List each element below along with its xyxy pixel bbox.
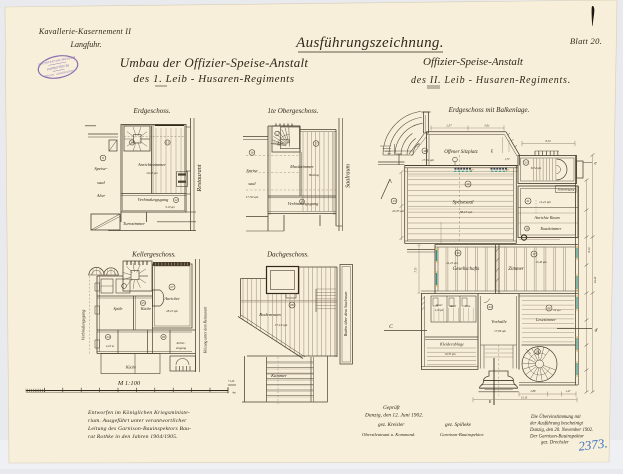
svg-text:Verbindungsgang: Verbindungsgang — [81, 309, 86, 341]
svg-text:Zimmer: Zimmer — [508, 267, 524, 272]
svg-text:Bodenraum: Bodenraum — [259, 312, 281, 317]
svg-text:16: 16 — [250, 151, 254, 155]
svg-text:Offizier-Speise-Anstalt: Offizier-Speise-Anstalt — [423, 56, 524, 68]
svg-text:15,10: 15,10 — [521, 396, 528, 399]
svg-text:21: 21 — [526, 199, 530, 203]
svg-text:Rauchzimmer: Rauchzimmer — [540, 227, 562, 231]
svg-text:Offener Sitzplatz: Offener Sitzplatz — [444, 150, 478, 155]
svg-text:Erdgeschoss.: Erdgeschoss. — [133, 107, 171, 115]
svg-text:Umbau der Offizier-Speise-Anst: Umbau der Offizier-Speise-Anstalt — [120, 55, 309, 70]
svg-text:18: 18 — [525, 227, 529, 231]
svg-text:rium. Ausgeführt unter verant: rium. Ausgeführt unter verantwortlicher — [88, 417, 187, 424]
svg-text:Boden über dem Saalraum: Boden über dem Saalraum — [343, 292, 348, 337]
svg-text:Danzig, den 12. Juni 1902.: Danzig, den 12. Juni 1902. — [364, 413, 423, 419]
svg-text:1,47: 1,47 — [566, 390, 571, 393]
svg-text:rat Rothke in den Jahren 1904/: rat Rothke in den Jahren 1904/1905. — [88, 434, 178, 440]
svg-text:19: 19 — [456, 251, 460, 255]
svg-text:23: 23 — [524, 161, 528, 165]
svg-text:27: 27 — [170, 285, 174, 289]
svg-text:Leitung des Garnison-Bauinspek: Leitung des Garnison-Bauinspektors Bau- — [87, 426, 191, 432]
svg-text:Turnzimmer: Turnzimmer — [123, 221, 145, 226]
svg-text:17: 17 — [314, 142, 318, 146]
svg-text:Dachgeschoss.: Dachgeschoss. — [266, 251, 309, 259]
svg-text:E: E — [490, 149, 494, 154]
svg-text:Abort: Abort — [449, 305, 457, 308]
svg-text:Küche: Küche — [125, 365, 136, 370]
svg-text:1te Obergeschoss.: 1te Obergeschoss. — [267, 107, 318, 115]
svg-text:Entworfen im Königlichen Krieg: Entworfen im Königlichen Kriegsministe- — [87, 409, 190, 416]
svg-text:gez. Drechsler: gez. Drechsler — [541, 441, 569, 446]
svg-text:Anrichtezimmer: Anrichtezimmer — [137, 162, 166, 167]
svg-text:Verbindungsgang: Verbindungsgang — [138, 197, 170, 202]
svg-text:Anrichte: Anrichte — [163, 296, 179, 301]
svg-text:Alter: Alter — [96, 193, 106, 198]
svg-text:4,10 qm: 4,10 qm — [435, 309, 443, 312]
svg-text:+2,40: +2,40 — [228, 380, 235, 383]
svg-text:Restaurant: Restaurant — [196, 164, 203, 192]
svg-text:Langfuhr.: Langfuhr. — [70, 40, 102, 49]
svg-text:24: 24 — [106, 335, 110, 339]
svg-text:Die Übereinstimmung mit: Die Übereinstimmung mit — [530, 414, 581, 420]
svg-text:2,88: 2,88 — [531, 390, 536, 393]
svg-text:gez. Kreisler: gez. Kreisler — [378, 422, 405, 428]
svg-text:Keller-: Keller- — [176, 341, 186, 345]
svg-text:4m: 4m — [232, 392, 235, 395]
svg-text:10: 10 — [130, 141, 134, 145]
svg-text:saal: saal — [97, 180, 105, 185]
svg-text:Kammer: Kammer — [270, 373, 287, 378]
svg-text:17: 17 — [532, 252, 536, 256]
svg-text:Erdgeschoss mit Balkenlage.: Erdgeschoss mit Balkenlage. — [448, 106, 530, 114]
svg-text:Ausführungszeichnung.: Ausführungszeichnung. — [295, 35, 444, 51]
svg-text:24,40: 24,40 — [594, 276, 597, 283]
svg-text:Blatt 20.: Blatt 20. — [570, 36, 602, 46]
svg-text:12: 12 — [174, 198, 178, 202]
svg-text:9,10 qm: 9,10 qm — [165, 206, 174, 209]
svg-text:Speise: Speise — [246, 168, 257, 173]
svg-text:8,10: 8,10 — [546, 140, 551, 143]
svg-text:des II. Leib - Husaren-Regime: des II. Leib - Husaren-Regiments. — [411, 75, 571, 86]
svg-text:Saalraum: Saalraum — [345, 163, 352, 188]
svg-text:Heizung: Heizung — [308, 173, 319, 177]
svg-text:24 qm: 24 qm — [553, 308, 561, 312]
svg-text:28: 28 — [290, 303, 294, 307]
svg-text:11: 11 — [166, 141, 169, 145]
svg-text:d: d — [595, 328, 598, 334]
svg-text:C: C — [389, 324, 393, 330]
svg-text:Anrichte Raum: Anrichte Raum — [533, 215, 559, 220]
svg-text:Der Garnison-Bauinspektor: Der Garnison-Bauinspektor — [529, 435, 584, 440]
svg-text:Geprüft: Geprüft — [383, 404, 400, 411]
svg-text:der Ausführung bescheinigt: der Ausführung bescheinigt — [530, 422, 584, 427]
svg-text:Piss.: Piss. — [464, 305, 471, 308]
svg-text:Abort: Abort — [435, 303, 443, 307]
svg-text:Küche: Küche — [140, 306, 151, 311]
svg-text:saal: saal — [248, 181, 256, 186]
svg-text:7,75: 7,75 — [415, 267, 418, 272]
svg-text:Vorhalle: Vorhalle — [491, 319, 506, 324]
svg-text:13: 13 — [392, 199, 396, 203]
svg-text:1,70: 1,70 — [505, 158, 510, 161]
svg-text:Kavallerie-Kasernement II: Kavallerie-Kasernement II — [38, 27, 131, 36]
svg-text:Gesellschafts: Gesellschafts — [453, 267, 480, 272]
svg-text:Verbindungsgang: Verbindungsgang — [288, 201, 320, 206]
svg-text:eingang: eingang — [176, 346, 187, 350]
svg-text:M 1:100: M 1:100 — [117, 380, 141, 387]
svg-text:Speisesaal: Speisesaal — [452, 201, 474, 206]
svg-text:26: 26 — [536, 350, 540, 354]
svg-text:24: 24 — [488, 305, 492, 309]
svg-text:gez. Spilleke: gez. Spilleke — [445, 422, 472, 428]
svg-text:Lesezimmer: Lesezimmer — [535, 317, 556, 322]
svg-text:Danzig, den 20. November 1902.: Danzig, den 20. November 1902. — [529, 428, 593, 433]
svg-text:Heizung unter dem Restaurant: Heizung unter dem Restaurant — [204, 306, 208, 354]
svg-text:Kellergeschoss.: Kellergeschoss. — [131, 251, 176, 259]
svg-text:20: 20 — [466, 182, 470, 186]
svg-text:Kleiderablage: Kleiderablage — [439, 342, 464, 347]
svg-text:25: 25 — [141, 301, 145, 305]
svg-text:Oberstleutnant u. Kommand.: Oberstleutnant u. Kommand. — [362, 432, 415, 437]
svg-text:26: 26 — [162, 335, 166, 339]
svg-text:Loggia: Loggia — [272, 142, 283, 146]
svg-text:Speise-: Speise- — [94, 166, 108, 171]
svg-text:Spüle: Spüle — [114, 306, 123, 311]
svg-text:Nebeneingang: Nebeneingang — [557, 188, 575, 192]
svg-text:Garnison-Bauinspektor.: Garnison-Bauinspektor. — [440, 432, 484, 437]
svg-text:Musikzimmer: Musikzimmer — [289, 164, 314, 169]
svg-text:8,10: 8,10 — [588, 247, 591, 252]
svg-text:14: 14 — [423, 149, 427, 153]
svg-text:des 1. Leib - Husaren-Regimen: des 1. Leib - Husaren-Regiments — [133, 73, 294, 85]
